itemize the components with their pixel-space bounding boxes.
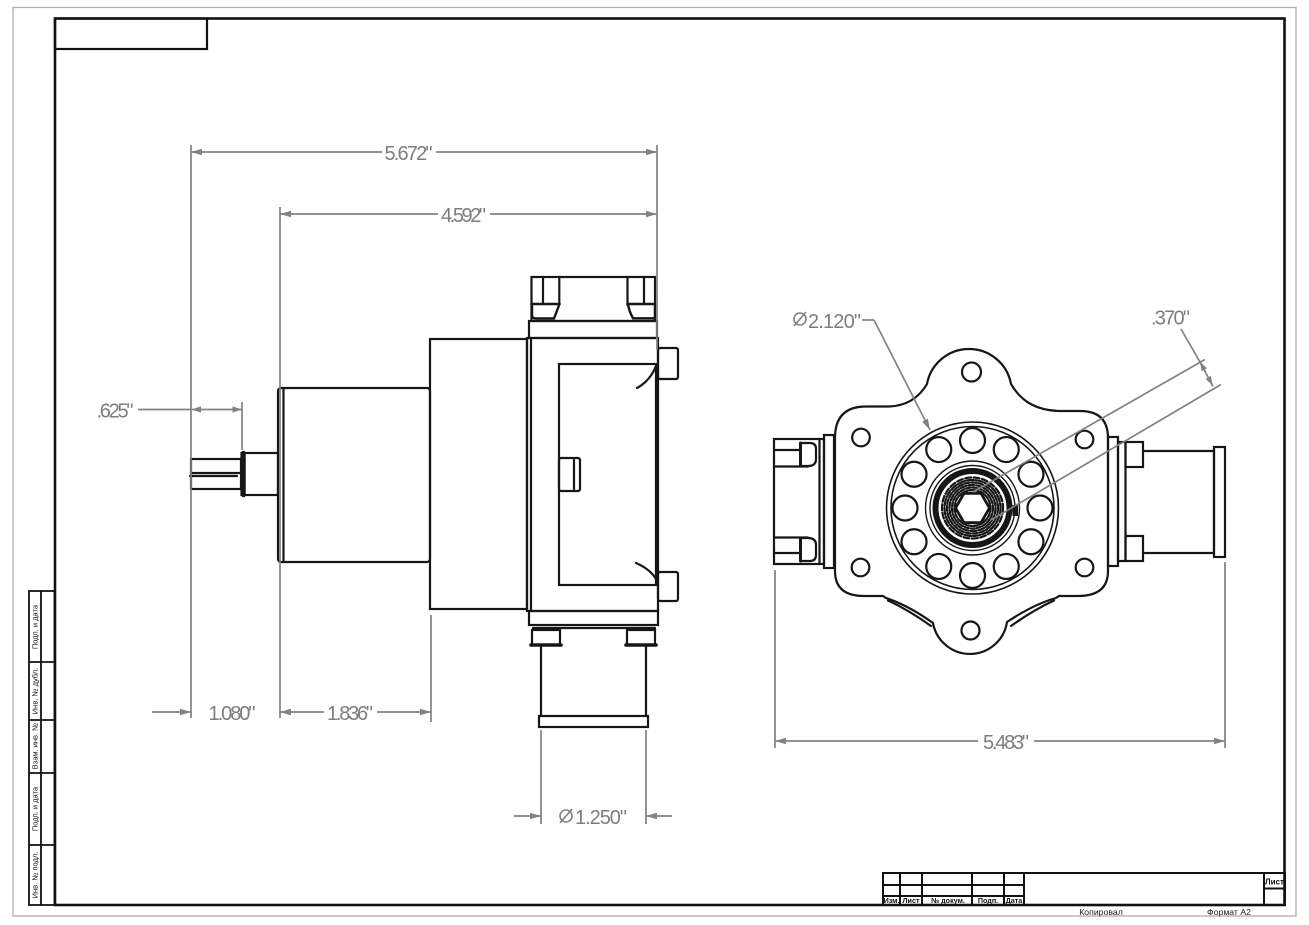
svg-text:Инв. № подл.: Инв. № подл. [31,852,40,899]
svg-text:Подп. и дата: Подп. и дата [31,786,40,831]
svg-text:5.672": 5.672" [385,143,433,165]
svg-text:.370": .370" [1151,308,1190,330]
svg-text:Лист: Лист [1265,878,1284,887]
svg-text:1.836": 1.836" [327,703,373,725]
svg-text:5.483": 5.483" [983,732,1029,754]
svg-text:Подп.: Подп. [978,896,998,905]
svg-text:4.592": 4.592" [441,205,486,227]
svg-text:.625": .625" [97,400,134,422]
svg-text:1.080": 1.080" [209,703,256,725]
svg-text:№ докум.: № докум. [931,896,965,905]
svg-text:Копировал: Копировал [1079,907,1123,917]
svg-text:Взам. инв. №: Взам. инв. № [31,723,40,769]
svg-text:1.250": 1.250" [575,807,627,829]
svg-text:Формат А2: Формат А2 [1207,907,1251,917]
svg-text:Дата: Дата [1006,896,1024,905]
svg-text:Изм.: Изм. [884,896,900,905]
svg-text:Инв. № дубл.: Инв. № дубл. [31,668,40,714]
svg-text:Подп. и дата: Подп. и дата [31,604,40,649]
svg-text:2.120": 2.120" [808,311,861,333]
svg-text:Лист: Лист [903,896,920,905]
